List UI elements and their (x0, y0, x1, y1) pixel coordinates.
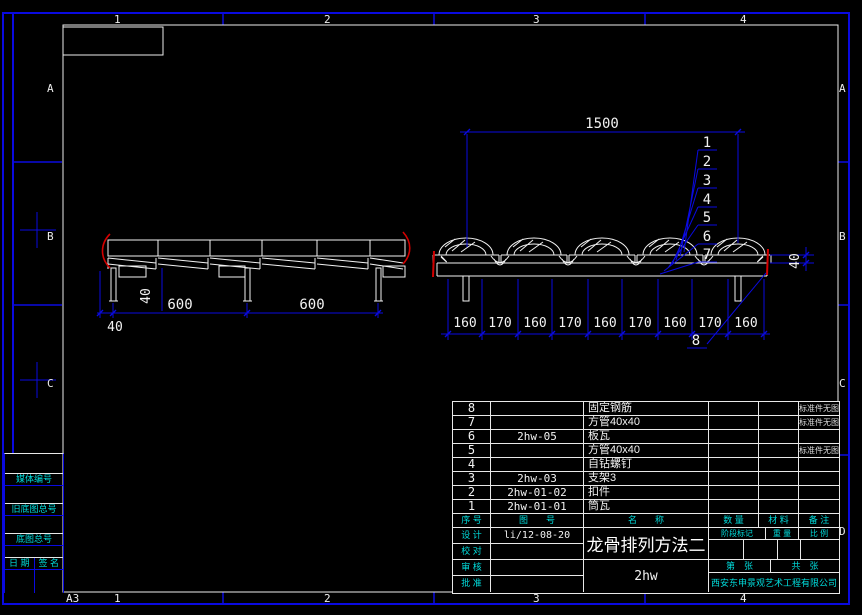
old-base-no-label: 旧底图总号 (5, 504, 63, 516)
part-material (759, 486, 799, 500)
part-dwg-no: 2hw-01-01 (491, 500, 584, 514)
part-dwg-no (491, 444, 584, 458)
review-label: 审 核 (453, 560, 491, 576)
part-dwg-no (491, 402, 584, 416)
callout-3: 3 (703, 173, 711, 189)
part-name: 筒瓦 (584, 500, 709, 514)
header-dwg-no: 图 号 (491, 514, 584, 528)
zone-letter-right-c: C (839, 378, 846, 389)
part-remark (799, 500, 839, 514)
header-material: 材 料 (759, 514, 799, 528)
part-dwg-no: 2hw-01-02 (491, 486, 584, 500)
dim-pitch-7: 160 (663, 316, 686, 331)
callout-8: 8 (692, 333, 700, 349)
part-name: 支架3 (584, 472, 709, 486)
zone-number-top-2: 2 (324, 14, 331, 25)
drawing-title: 龙骨排列方法二 (584, 528, 708, 560)
dim-pitch-4: 170 (558, 316, 581, 331)
dim-hanger-height: 40 (139, 288, 154, 304)
part-name: 方管40x40 (584, 416, 709, 430)
zone-letter-right-a: A (839, 83, 846, 94)
approve-value (491, 576, 584, 592)
part-seq: 3 (453, 472, 491, 486)
header-seq: 序 号 (453, 514, 491, 528)
section-dimensions (441, 129, 814, 340)
company-name: 西安东申景观艺术工程有限公司 (709, 573, 839, 592)
part-material (759, 472, 799, 486)
drawing-code: 2hw (584, 560, 708, 592)
dim-pitch-2: 170 (488, 316, 511, 331)
part-material (759, 402, 799, 416)
dim-pitch-1: 160 (453, 316, 476, 331)
zone-letter-left-b: B (47, 231, 54, 242)
stage-mark-cells (709, 540, 839, 560)
part-qty (709, 458, 759, 472)
part-qty (709, 486, 759, 500)
weight-label: 重 量 (766, 528, 799, 539)
scale-label: 比 例 (799, 528, 839, 539)
sheet-total-label: 共 张 (771, 560, 839, 572)
sheet-no-label: 第 张 (709, 560, 771, 572)
callout-4: 4 (703, 192, 711, 208)
part-dwg-no (491, 458, 584, 472)
barrel-tile (433, 238, 771, 263)
signature-block: 设 计 li/12-08-20 校 对 审 核 批 准 (453, 528, 584, 592)
zone-letter-left-c: C (47, 378, 54, 389)
header-qty: 数 量 (709, 514, 759, 528)
callout-5: 5 (703, 210, 711, 226)
part-seq: 4 (453, 458, 491, 472)
part-remark (799, 486, 839, 500)
sign-label: 签 名 (35, 558, 64, 570)
title-block: 8 固定钢筋 标准件无图 7 方管40x40 标准件无图 6 2hw-05 板瓦… (452, 401, 840, 594)
base-no-label: 底图总号 (5, 534, 63, 546)
zone-number-bottom-2: 2 (324, 593, 331, 604)
dim-pitch-9: 160 (734, 316, 757, 331)
cad-sheet: 40 40 600 600 (0, 0, 862, 615)
part-remark: 标准件无图 (799, 444, 839, 458)
dim-spacing-1: 600 (167, 297, 192, 313)
part-remark: 标准件无图 (799, 402, 839, 416)
part-seq: 7 (453, 416, 491, 430)
design-value: li/12-08-20 (491, 528, 584, 544)
part-name: 板瓦 (584, 430, 709, 444)
part-seq: 1 (453, 500, 491, 514)
part-remark: 标准件无图 (799, 416, 839, 430)
part-name: 固定钢筋 (584, 402, 709, 416)
dim-left-offset: 40 (107, 320, 123, 335)
callout-7: 7 (703, 247, 711, 263)
margin-empty-box (5, 454, 63, 474)
design-label: 设 计 (453, 528, 491, 544)
part-dwg-no: 2hw-05 (491, 430, 584, 444)
part-qty (709, 402, 759, 416)
part-material (759, 500, 799, 514)
part-material (759, 430, 799, 444)
date-box (5, 570, 35, 593)
zone-letter-left-a: A (47, 83, 54, 94)
part-remark (799, 430, 839, 444)
date-label: 日 期 (5, 558, 35, 570)
zone-number-top-1: 1 (114, 14, 121, 25)
revision-box (63, 27, 163, 55)
zone-number-top-3: 3 (533, 14, 540, 25)
part-qty (709, 430, 759, 444)
zone-number-bottom-3: 3 (533, 593, 540, 604)
callout-1: 1 (703, 135, 711, 151)
zone-number-bottom-4: 4 (740, 593, 747, 604)
part-qty (709, 500, 759, 514)
dim-section-height: 40 (788, 253, 803, 269)
part-qty (709, 444, 759, 458)
zone-number-bottom-1: 1 (114, 593, 121, 604)
zone-number-top-4: 4 (740, 14, 747, 25)
stage-mark-label: 阶段标记 (709, 528, 766, 539)
part-name: 自钻螺钉 (584, 458, 709, 472)
dim-pitch-3: 160 (523, 316, 546, 331)
parts-list: 8 固定钢筋 标准件无图 7 方管40x40 标准件无图 6 2hw-05 板瓦… (453, 402, 839, 528)
media-no-box (5, 486, 63, 504)
part-material (759, 444, 799, 458)
old-base-no-box (5, 516, 63, 534)
part-seq: 8 (453, 402, 491, 416)
approve-label: 批 准 (453, 576, 491, 592)
dim-overall: 1500 (585, 116, 619, 132)
review-value (491, 560, 584, 576)
part-material (759, 416, 799, 430)
margin-box-group: 媒体编号 旧底图总号 底图总号 日 期 签 名 (4, 453, 64, 593)
proofread-value (491, 544, 584, 560)
dim-pitch-6: 170 (628, 316, 651, 331)
part-qty (709, 416, 759, 430)
header-name: 名 称 (584, 514, 709, 528)
part-seq: 2 (453, 486, 491, 500)
part-remark (799, 472, 839, 486)
part-material (759, 458, 799, 472)
part-name: 扣件 (584, 486, 709, 500)
section-view (433, 238, 771, 301)
part-seq: 5 (453, 444, 491, 458)
zone-letter-right-b: B (839, 231, 846, 242)
header-remark: 备 注 (799, 514, 839, 528)
part-qty (709, 472, 759, 486)
part-dwg-no: 2hw-03 (491, 472, 584, 486)
part-remark (799, 458, 839, 472)
part-name: 方管40x40 (584, 444, 709, 458)
callout-6: 6 (703, 229, 711, 245)
dim-spacing-2: 600 (299, 297, 324, 313)
sheet-size-label: A3 (66, 593, 79, 604)
proofread-label: 校 对 (453, 544, 491, 560)
dim-pitch-5: 160 (593, 316, 616, 331)
media-no-label: 媒体编号 (5, 474, 63, 486)
base-no-box (5, 546, 63, 558)
callout-2: 2 (703, 154, 711, 170)
part-seq: 6 (453, 430, 491, 444)
part-dwg-no (491, 416, 584, 430)
sign-box (35, 570, 64, 593)
pan-tile (441, 256, 763, 265)
dim-pitch-8: 170 (698, 316, 721, 331)
